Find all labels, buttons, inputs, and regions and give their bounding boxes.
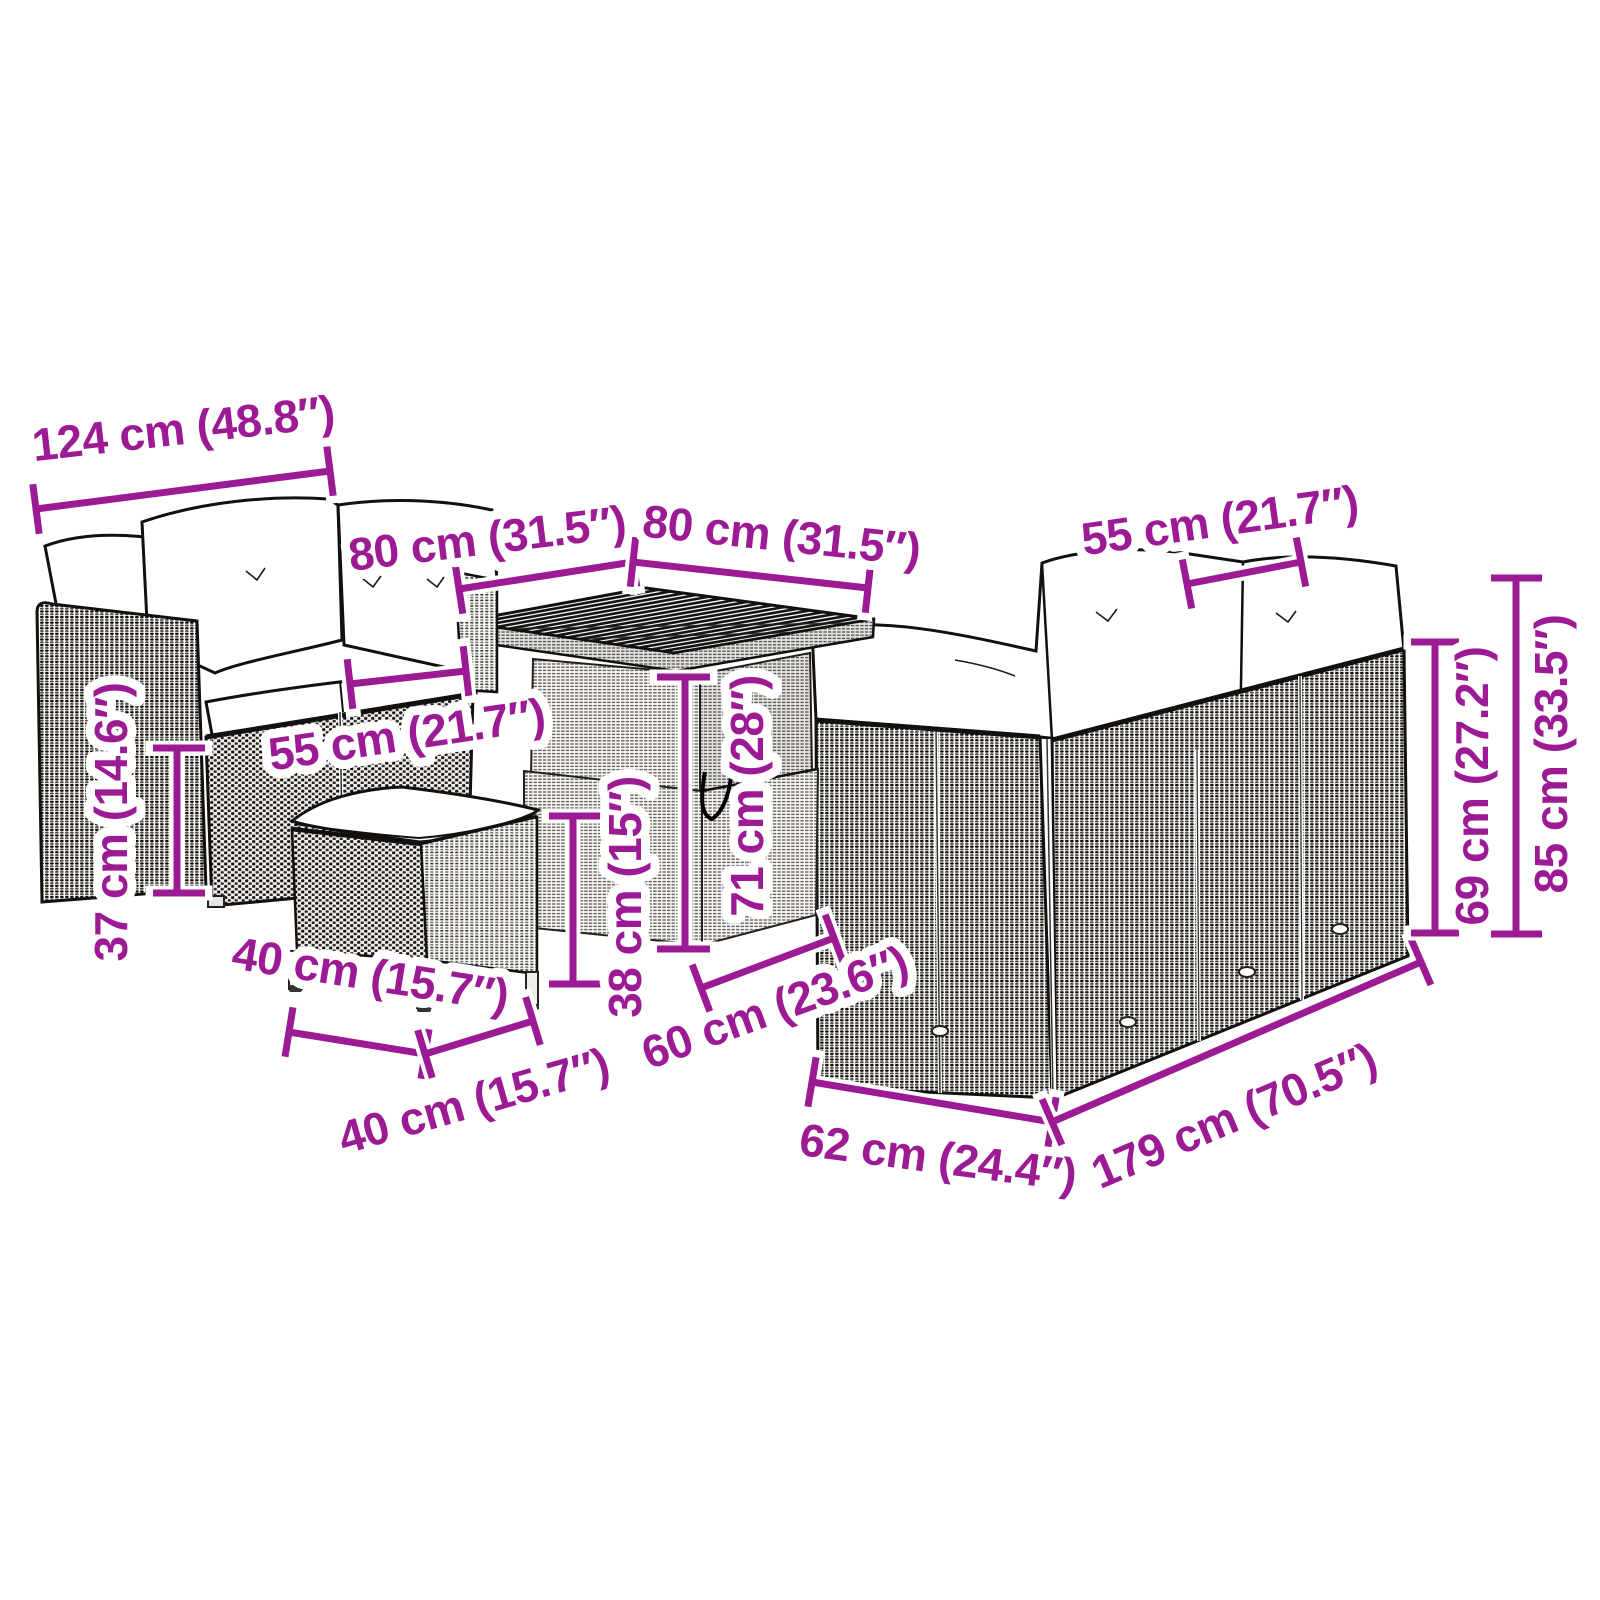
svg-text:69 cm (27.2″): 69 cm (27.2″) — [1446, 647, 1498, 926]
svg-text:71 cm (28″): 71 cm (28″) — [721, 675, 773, 917]
svg-text:85 cm (33.5″): 85 cm (33.5″) — [1525, 615, 1577, 894]
svg-text:37 cm (14.6″): 37 cm (14.6″) — [85, 683, 137, 962]
svg-text:38 cm (15″): 38 cm (15″) — [599, 776, 651, 1018]
